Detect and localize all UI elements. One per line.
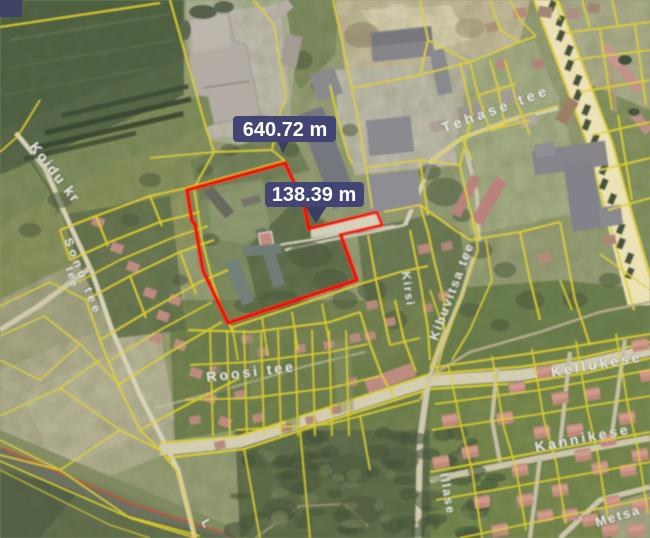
svg-text:640.72 m: 640.72 m — [243, 119, 328, 141]
svg-text:138.39 m: 138.39 m — [272, 184, 357, 206]
